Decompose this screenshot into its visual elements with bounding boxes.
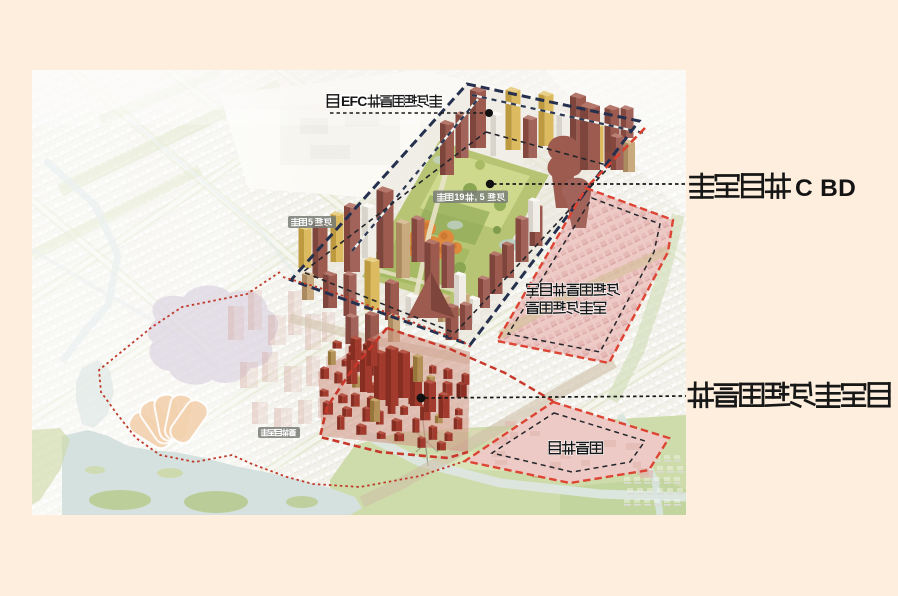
- svg-text:C BD: C BD: [795, 175, 856, 202]
- svg-text:EFC: EFC: [341, 93, 367, 109]
- svg-text:5: 5: [308, 217, 313, 227]
- svg-text:19: 19: [454, 192, 464, 202]
- svg-text:, 5: , 5: [475, 192, 485, 202]
